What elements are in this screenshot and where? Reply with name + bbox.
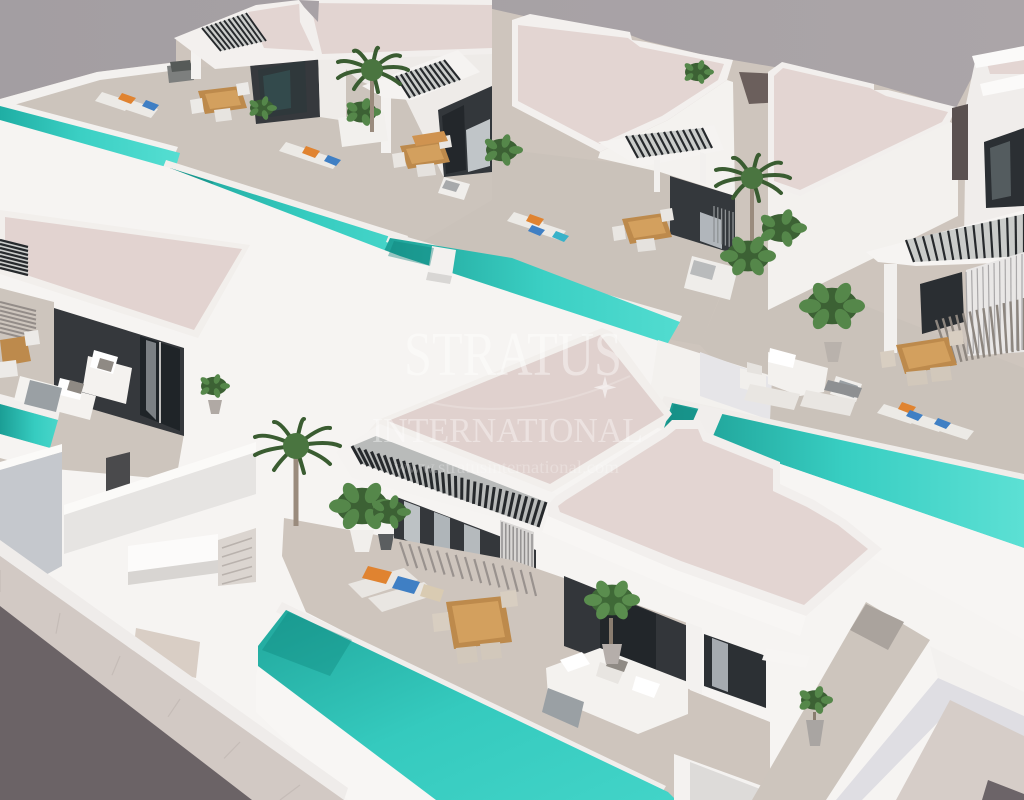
svg-text:INTERNATIONAL: INTERNATIONAL (372, 411, 643, 450)
svg-text:www.stratusinternational.com: www.stratusinternational.com (394, 457, 619, 477)
svg-text:STRATUS: STRATUS (404, 321, 622, 389)
